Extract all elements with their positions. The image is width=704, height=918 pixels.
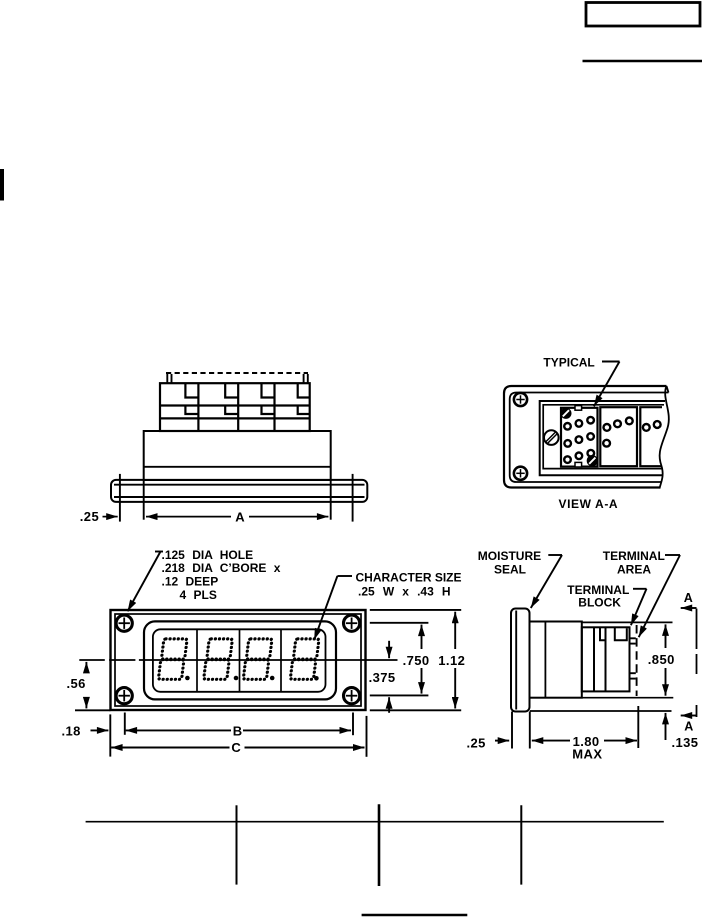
- svg-text:VIEW A-A: VIEW A-A: [559, 497, 619, 511]
- svg-text:4 PLS: 4 PLS: [180, 588, 217, 602]
- svg-text:.25: .25: [80, 509, 99, 524]
- svg-text:A: A: [684, 719, 693, 733]
- svg-text:AREA: AREA: [617, 563, 651, 577]
- svg-text:.135: .135: [672, 735, 699, 750]
- svg-text:TERMINAL: TERMINAL: [603, 549, 665, 563]
- svg-text:.125 DIA HOLE: .125 DIA HOLE: [162, 548, 254, 562]
- svg-text:BLOCK: BLOCK: [578, 595, 621, 609]
- svg-text:.12 DEEP: .12 DEEP: [162, 575, 219, 589]
- svg-text:CHARACTER SIZE: CHARACTER SIZE: [356, 570, 462, 584]
- svg-text:.375: .375: [369, 670, 396, 685]
- svg-text:TYPICAL: TYPICAL: [543, 356, 594, 370]
- svg-text:.850: .850: [648, 652, 675, 667]
- svg-text:.18: .18: [62, 723, 81, 738]
- svg-text:B: B: [233, 723, 242, 738]
- svg-text:A: A: [235, 509, 245, 524]
- svg-text:MAX: MAX: [572, 746, 602, 761]
- svg-text:MOISTURE: MOISTURE: [478, 549, 541, 563]
- svg-text:1.12: 1.12: [438, 653, 465, 668]
- svg-text:.56: .56: [67, 676, 86, 691]
- svg-text:.218 DIA C’BORE x: .218 DIA C’BORE x: [162, 561, 281, 575]
- svg-text:.25 W x .43 H: .25 W x .43 H: [358, 584, 451, 598]
- svg-text:.25: .25: [467, 735, 486, 750]
- svg-text:.750: .750: [403, 653, 430, 668]
- svg-text:SEAL: SEAL: [494, 563, 526, 577]
- svg-text:A: A: [684, 591, 693, 605]
- svg-text:C: C: [231, 740, 241, 755]
